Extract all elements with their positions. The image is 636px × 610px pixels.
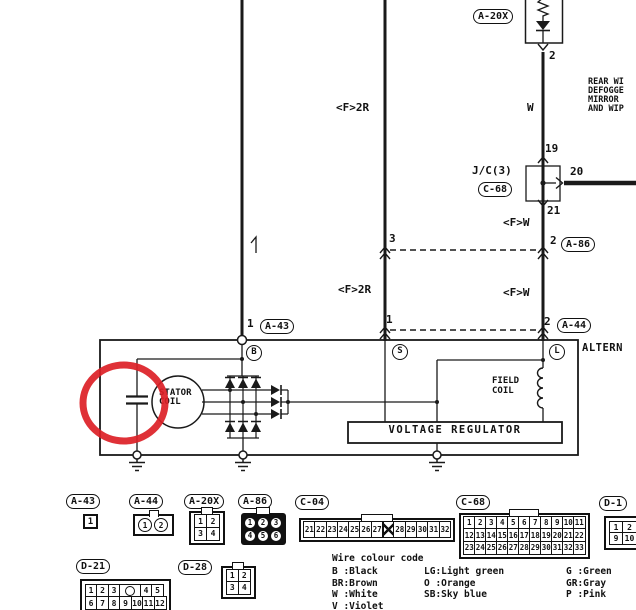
legend-entry-w: W :White: [332, 589, 383, 601]
connector-a44-pin-1: 1: [138, 518, 152, 532]
pin-2-a44: 2: [544, 316, 551, 327]
connector-a86-row-1: 123: [244, 516, 283, 529]
connector-label-c68-top: C-68: [478, 182, 512, 197]
connector-c04-label: C-04: [295, 495, 329, 510]
connector-a44-pin-2: 2: [154, 518, 168, 532]
connector-a20x-tab: [201, 507, 213, 514]
connector-a44-row-1: 12: [138, 518, 169, 532]
connector-label-a86: A-86: [561, 237, 595, 252]
connector-d1-pin-10: 10: [622, 532, 636, 545]
connector-c04-row-1: 212223242526272829303132: [303, 522, 451, 538]
connector-a86-pin-1: 1: [244, 517, 256, 529]
connector-d21-row-2: 6789101112: [85, 598, 167, 610]
connector-c04-pinout: 212223242526272829303132: [299, 518, 455, 542]
connector-d28-row-2: 34: [226, 583, 252, 595]
connector-c68-label: C-68: [456, 495, 490, 510]
connector-a43-pin-1: 1: [83, 514, 98, 529]
wire-label-fw-upper: <F>W: [503, 217, 530, 228]
connector-a86-pin-4: 4: [244, 530, 256, 542]
connector-c68-row-3: 2324252627282930313233: [463, 542, 586, 555]
connector-d28-pinout: 1234: [221, 566, 256, 599]
legend-title: Wire colour code: [332, 554, 424, 564]
pin-21: 21: [547, 205, 560, 216]
connector-c68-pinout: 1234567891011121314151617181920212223242…: [459, 513, 590, 559]
legend-column-3: G :GreenGR:GrayP :Pink: [566, 566, 612, 601]
connector-a86-pin-6: 6: [270, 530, 282, 542]
voltage-regulator-label: VOLTAGE REGULATOR: [350, 425, 560, 436]
pin-1-mid: 1: [386, 314, 393, 325]
pin-20: 20: [570, 166, 583, 177]
connector-a86-pin-5: 5: [257, 530, 269, 542]
connector-label-a43-top: A-43: [260, 319, 294, 334]
terminal-b: B: [246, 345, 262, 361]
wire-label-f2r-upper: <F>2R: [336, 102, 369, 113]
connector-c04-pin-32: 32: [439, 521, 452, 538]
connector-d1-row-2: 910: [609, 534, 636, 546]
wire-color-w: W: [527, 102, 534, 113]
legend-entry-b: B :Black: [332, 566, 383, 578]
pin-2-diode: 2: [549, 50, 556, 61]
legend-entry-v: V :Violet: [332, 601, 383, 610]
connector-a43-row-1: 1: [83, 514, 98, 529]
pin-2-a86: 2: [550, 235, 557, 246]
field-coil-label-1: FIELD: [492, 377, 519, 386]
connector-d21-hole: [125, 586, 135, 596]
legend-entry-br: BR:Brown: [332, 578, 383, 590]
connector-c04-tab: [361, 514, 393, 521]
connector-d21-label: D-21: [76, 559, 110, 574]
connector-d28-label: D-28: [178, 560, 212, 575]
legend-entry-sb: SB:Sky blue: [424, 589, 504, 601]
connector-a86-pin-3: 3: [270, 517, 282, 529]
connector-label-a44-top: A-44: [557, 318, 591, 333]
legend-entry-g: G :Green: [566, 566, 612, 578]
alternator-wiring-diagram: A-20X2W19J/C(3)C-682021<F>W2A-86<F>W2A-4…: [0, 0, 636, 610]
connector-a86-pin-2: 2: [257, 517, 269, 529]
legend-entry-o: O :Orange: [424, 578, 504, 590]
terminal-l: L: [549, 344, 565, 360]
legend-entry-lg: LG:Light green: [424, 566, 504, 578]
field-coil-label-2: COIL: [492, 387, 514, 396]
connector-d21-pinout: 123456789101112: [80, 579, 171, 610]
legend-column-2: LG:Light greenO :OrangeSB:Sky blue: [424, 566, 504, 601]
connector-a20x-pinout: 1234: [189, 511, 225, 545]
wire-label-f2r-lower: <F>2R: [338, 284, 371, 295]
alternator-title: ALTERN: [582, 343, 623, 354]
system-note-line4: AND WIP: [588, 105, 624, 114]
connector-a43-label: A-43: [66, 494, 100, 509]
connector-a20x-row-2: 34: [194, 528, 221, 541]
connector-a20x-pin-4: 4: [206, 527, 220, 541]
stator-coil-label-2: COIL: [159, 398, 181, 407]
connector-c68-tab: [509, 509, 539, 516]
connector-a86-tab: [256, 507, 270, 514]
connector-a43-pinout: 1: [83, 514, 98, 529]
pin-3: 3: [389, 233, 396, 244]
connector-label-a20x: A-20X: [473, 9, 513, 24]
connector-a44-pinout: 12: [133, 514, 174, 536]
legend-entry-p: P :Pink: [566, 589, 612, 601]
wire-label-fw-lower: <F>W: [503, 287, 530, 298]
connector-d28-tab: [232, 562, 244, 569]
pin-19: 19: [545, 143, 558, 154]
pin-1-a43: 1: [247, 318, 254, 329]
connector-d1-pinout: 12910: [604, 516, 636, 550]
connector-d1-label: D-1: [599, 496, 627, 511]
connector-a44-tab: [149, 510, 159, 517]
connector-a44-label: A-44: [129, 494, 163, 509]
legend-column-1: B :BlackBR:BrownW :WhiteV :Violet: [332, 566, 383, 610]
connector-d28-pin-4: 4: [238, 581, 252, 595]
terminal-s: S: [392, 344, 408, 360]
junction-label-jc3: J/C(3): [472, 165, 512, 176]
connector-a86-pinout: 123456: [241, 513, 286, 545]
connector-a86-row-2: 456: [244, 529, 283, 542]
connector-d21-pin-12: 12: [154, 596, 167, 610]
connector-c68-pin-33: 33: [573, 541, 586, 555]
legend-entry-gr: GR:Gray: [566, 578, 612, 590]
